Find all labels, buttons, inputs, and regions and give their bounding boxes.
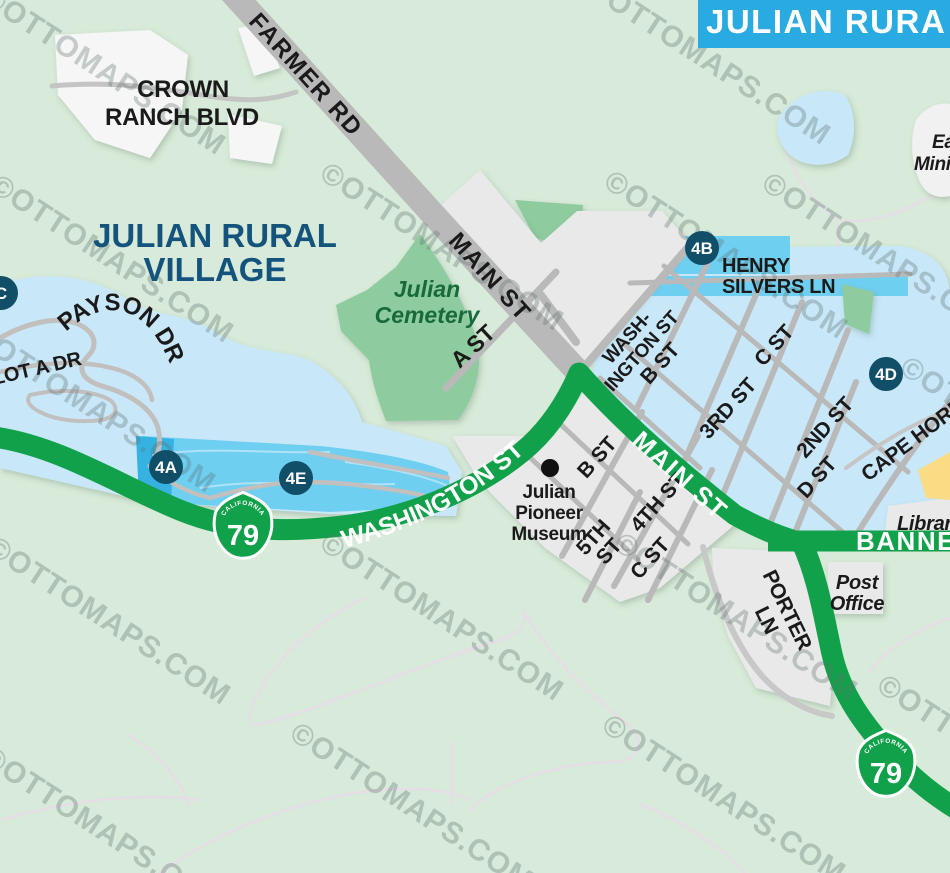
badge-4e-label: 4E <box>286 469 307 488</box>
museum-poi-dot <box>541 459 559 477</box>
label-museum-line2: Pioneer <box>515 503 583 524</box>
badge-4d: 4D <box>869 357 903 391</box>
badge-c-label: C <box>0 284 7 303</box>
label-eagle-line2: Mining <box>914 154 950 175</box>
label-cemetery-line1: Julian <box>394 276 460 302</box>
label-village-line2: VILLAGE <box>143 251 286 288</box>
badge-4b: 4B <box>685 231 719 265</box>
label-museum-line1: Julian <box>522 482 575 503</box>
badge-4a-label: 4A <box>155 458 177 477</box>
label-cemetery-line2: Cemetery <box>375 302 481 328</box>
label-julian-pioneer-museum: Julian Pioneer Museum <box>511 482 586 545</box>
label-library: Library <box>897 513 950 535</box>
label-village-line1: JULIAN RURAL <box>93 217 337 254</box>
map-title: JULIAN RURA <box>706 3 946 40</box>
label-henry-line2: SILVERS LN <box>722 276 835 298</box>
julian-map-canvas: ©OTTOMAPS.COM CALIFORNIA 79 <box>0 0 950 873</box>
label-crown-line1: CROWN <box>137 76 229 103</box>
label-post-line1: Post <box>836 572 880 594</box>
label-crown-line2: RANCH BLVD <box>105 104 259 131</box>
badge-4b-label: 4B <box>691 239 713 258</box>
label-eagle-line1: Eagle <box>932 132 950 153</box>
map-title-banner: JULIAN RURA <box>698 0 950 48</box>
label-post-office: Post Office <box>830 572 885 615</box>
label-post-line2: Office <box>830 593 885 615</box>
label-henry-line1: HENRY <box>722 255 791 277</box>
badge-4a: 4A <box>149 450 183 484</box>
badge-4e: 4E <box>279 461 313 495</box>
highway-79-shield-southeast <box>859 732 914 795</box>
badge-4d-label: 4D <box>875 365 897 384</box>
highway-79-shield-west <box>216 494 271 557</box>
label-museum-line3: Museum <box>511 524 586 545</box>
